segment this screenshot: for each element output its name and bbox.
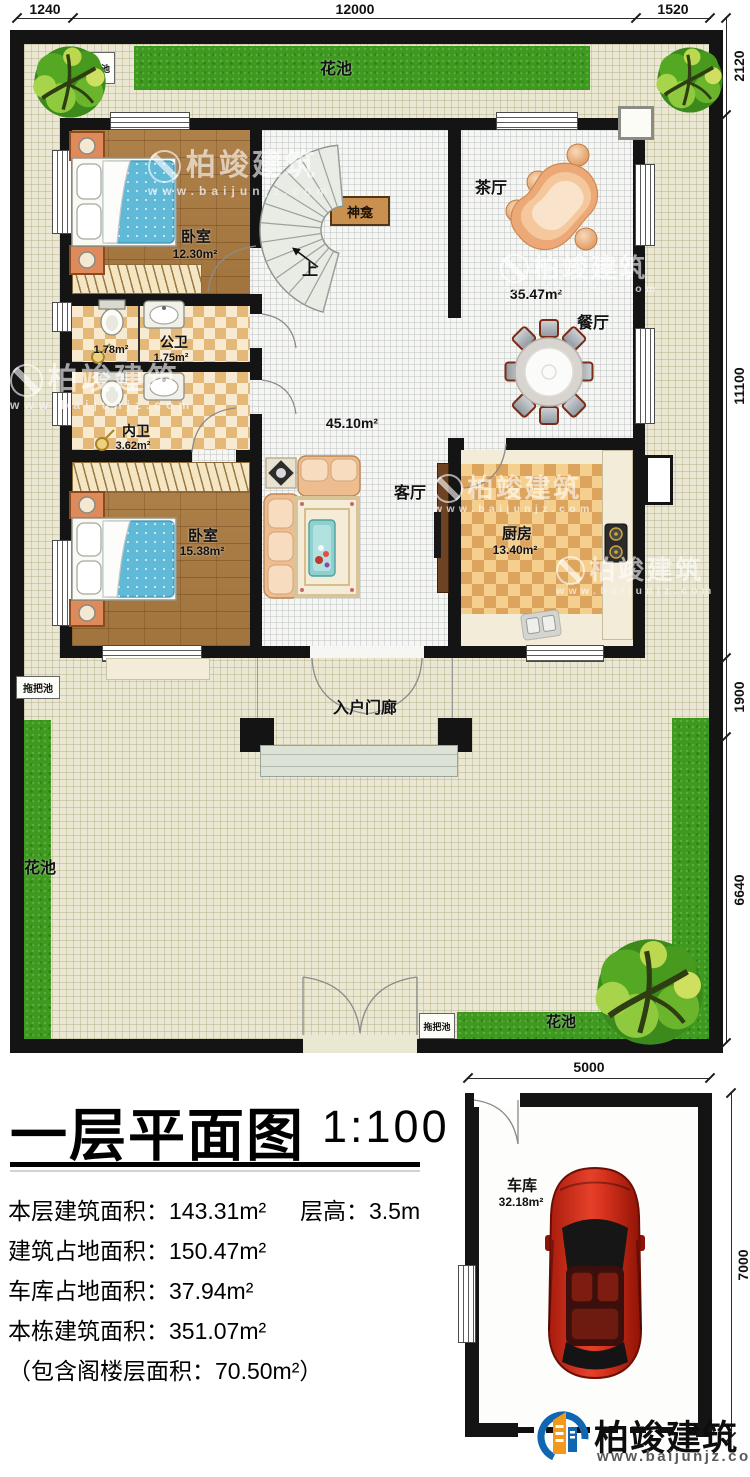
area-label-bedroom2: 15.38m²	[180, 544, 225, 558]
company-website: www.baijunjz.com	[597, 1448, 750, 1465]
dim-right-2120: 2120	[731, 50, 747, 81]
room-label-bedroom2: 卧室	[188, 525, 218, 546]
stairs-up-label: 上	[302, 256, 318, 280]
dining-table-icon	[506, 320, 593, 424]
dim-right-11100: 11100	[731, 367, 747, 404]
tea-table-icon	[506, 144, 598, 250]
sofa-icon	[264, 456, 360, 598]
stove-icon	[605, 524, 627, 562]
room-label-private-bath: 内卫	[122, 421, 150, 441]
staircase	[260, 145, 343, 312]
room-label-garage: 车库	[507, 1175, 537, 1196]
room-label-porch: 入户门廊	[333, 694, 397, 718]
area-label-tea-dining: 35.47m²	[510, 286, 562, 302]
area-label-bedroom1: 12.30m²	[173, 247, 218, 261]
room-label-public-bath: 公卫	[160, 332, 188, 352]
dimension-line-garage-right	[731, 1093, 732, 1437]
dimension-line-garage-top	[468, 1078, 710, 1079]
area-label-shower: 1.78m²	[94, 344, 129, 356]
flower-bed-label: 花池	[320, 55, 352, 79]
page-title: 一层平面图	[10, 1090, 305, 1172]
area-label-private-bath: 3.62m²	[116, 440, 151, 452]
stat-total-area: 本栋建筑面积：351.07m²	[8, 1312, 266, 1346]
room-label-bedroom1: 卧室	[181, 226, 211, 247]
area-label-public-bath: 1.75m²	[154, 352, 189, 364]
company-logo-icon	[534, 1408, 592, 1466]
drawing-scale: 1:100	[322, 1101, 450, 1153]
area-label-garage: 32.18m²	[499, 1195, 544, 1209]
tree-icon	[596, 939, 703, 1044]
stat-garage-area: 车库占地面积：37.94m²	[8, 1272, 253, 1306]
room-label-living: 客厅	[394, 479, 426, 503]
dimension-line-top	[17, 18, 711, 19]
kitchen-sink-icon	[520, 609, 561, 640]
stat-floor-height: 层高：3.5m	[300, 1192, 420, 1226]
dim-top-12000: 12000	[336, 1, 375, 17]
title-underline	[10, 1162, 420, 1167]
dim-top-1520: 1520	[657, 1, 688, 17]
area-label-living: 45.10m²	[326, 415, 378, 431]
dim-garage-5000: 5000	[573, 1059, 604, 1075]
room-label-dining: 餐厅	[577, 309, 609, 333]
bed-icon	[70, 492, 176, 626]
stat-attic-area: （包含阁楼层面积：70.50m²）	[8, 1352, 322, 1386]
floor-plan-page: 拖把池 拖把池 拖把池 神龛	[0, 0, 750, 1477]
dim-garage-7000: 7000	[735, 1249, 750, 1280]
stat-floor-area: 本层建筑面积：143.31m²	[8, 1192, 266, 1226]
title-underline-shadow	[10, 1170, 420, 1172]
area-label-kitchen: 13.40m²	[493, 543, 538, 557]
tree-icon	[656, 47, 722, 112]
bed-icon	[70, 132, 176, 274]
flower-bed-label: 花池	[24, 854, 56, 878]
dim-top-1240: 1240	[29, 1, 60, 17]
stat-footprint-area: 建筑占地面积：150.47m²	[8, 1232, 266, 1266]
tree-icon	[33, 46, 105, 117]
room-label-tea-hall: 茶厅	[475, 174, 507, 198]
dim-right-1900: 1900	[731, 681, 747, 712]
room-label-kitchen: 厨房	[502, 523, 532, 544]
flower-bed-label: 花池	[546, 1011, 576, 1032]
car-icon	[545, 1168, 645, 1378]
dimension-line-right	[726, 18, 727, 1043]
dim-right-6640: 6640	[731, 874, 747, 905]
